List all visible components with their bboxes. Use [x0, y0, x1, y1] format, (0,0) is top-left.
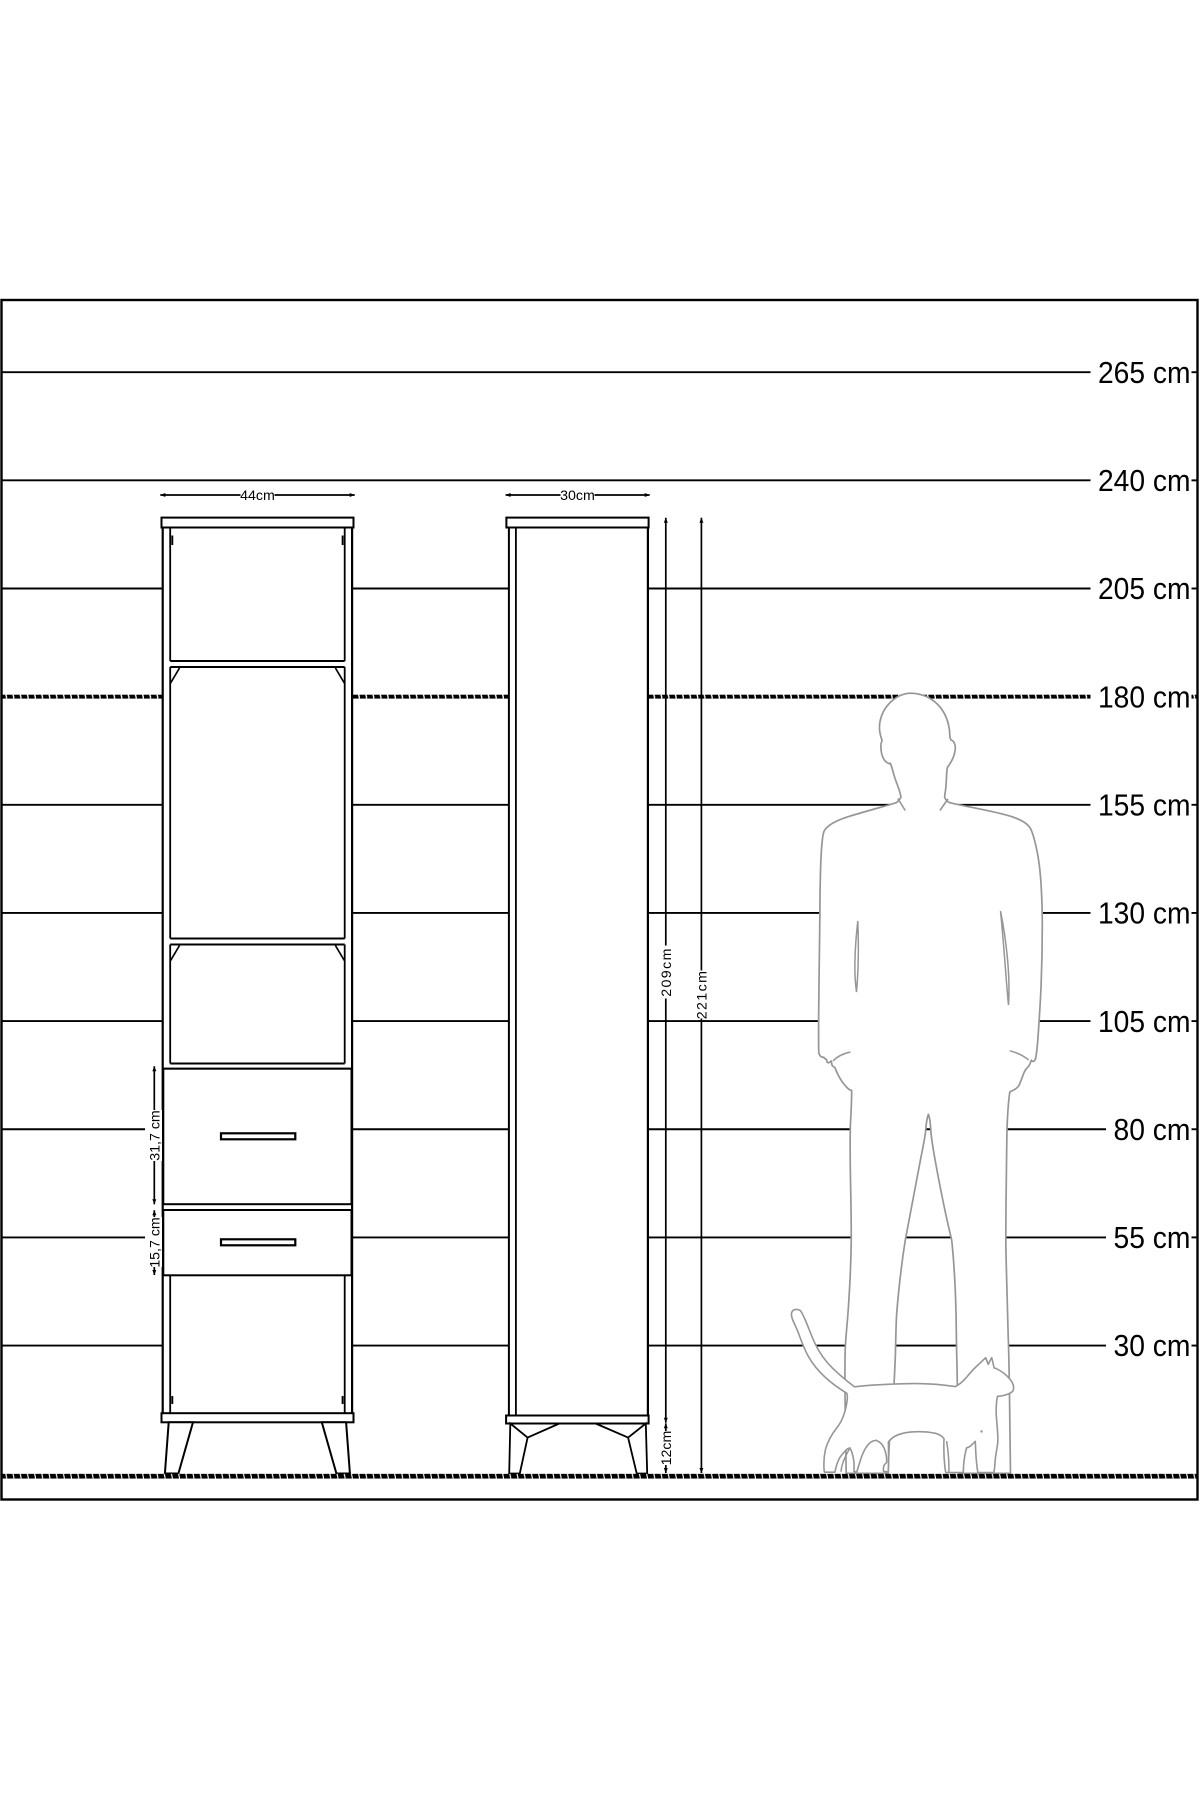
svg-text:240 cm: 240 cm	[1098, 465, 1191, 498]
svg-text:80 cm: 80 cm	[1114, 1114, 1191, 1147]
svg-text:55 cm: 55 cm	[1114, 1222, 1191, 1255]
svg-text:15,7 cm: 15,7 cm	[147, 1217, 163, 1267]
svg-text:12cm: 12cm	[659, 1431, 675, 1466]
svg-text:44cm: 44cm	[240, 488, 275, 504]
svg-text:105 cm: 105 cm	[1098, 1006, 1191, 1039]
svg-text:205 cm: 205 cm	[1098, 573, 1191, 606]
svg-text:155 cm: 155 cm	[1098, 790, 1191, 823]
svg-text:180 cm: 180 cm	[1098, 681, 1191, 714]
svg-text:209cm: 209cm	[659, 947, 675, 997]
svg-text:31,7 cm: 31,7 cm	[147, 1110, 163, 1160]
svg-text:30cm: 30cm	[560, 488, 595, 504]
svg-text:265 cm: 265 cm	[1098, 357, 1191, 390]
svg-text:221cm: 221cm	[694, 970, 710, 1020]
svg-text:130 cm: 130 cm	[1098, 898, 1191, 931]
svg-text:30 cm: 30 cm	[1114, 1330, 1191, 1363]
